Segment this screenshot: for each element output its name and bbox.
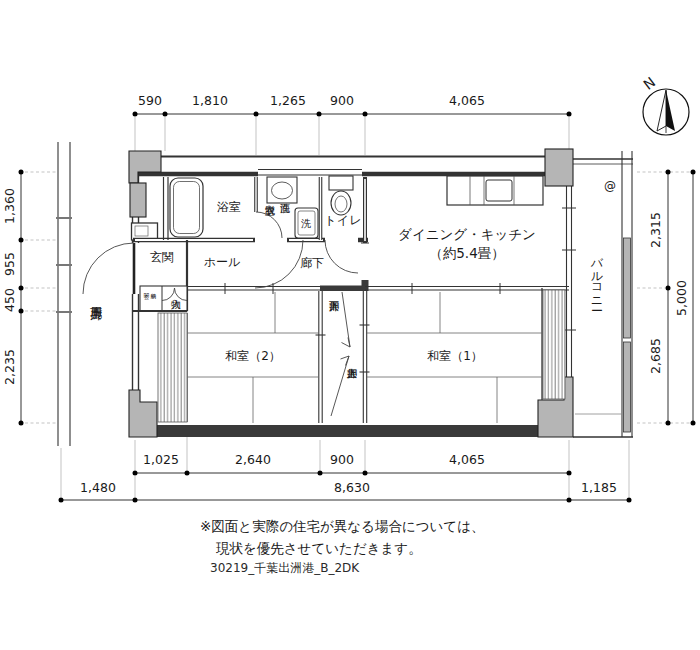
hall-label: ホール bbox=[204, 255, 241, 269]
japanese-room-1-label: 和室（1） bbox=[427, 349, 483, 363]
dim-top-2: 1,810 bbox=[192, 93, 228, 108]
north-compass-icon: N bbox=[640, 74, 689, 135]
bath-door-swing bbox=[256, 212, 282, 238]
entrance-label: 玄関 bbox=[150, 250, 174, 264]
dim-bottom-total-3: 1,185 bbox=[581, 480, 617, 495]
dim-top-3: 1,265 bbox=[270, 93, 306, 108]
dim-bottom-4: 4,065 bbox=[449, 452, 485, 467]
dim-left-3: 450 bbox=[2, 288, 17, 312]
dining-kitchen-label: ダイニング・キッチン bbox=[398, 226, 536, 242]
floor-plan-drawing: 590 1,810 1,265 900 4,065 1,360 955 450 … bbox=[0, 0, 700, 650]
closet-upper-label: 上部押入 bbox=[347, 368, 358, 379]
bathroom-label: 浴室 bbox=[217, 200, 241, 214]
dim-right-total: 5,000 bbox=[674, 280, 689, 316]
dim-bottom-total-1: 1,480 bbox=[80, 480, 116, 495]
toilet-tank bbox=[329, 176, 353, 190]
north-label: N bbox=[640, 74, 658, 93]
window-shutter-strips bbox=[158, 288, 565, 422]
dressing-door-swing bbox=[255, 240, 303, 288]
dim-bottom-2: 2,640 bbox=[235, 452, 271, 467]
dim-right-1: 2,315 bbox=[648, 212, 663, 248]
dim-left-1: 1,360 bbox=[2, 188, 17, 224]
dim-top-4: 900 bbox=[330, 93, 354, 108]
shared-corridor bbox=[56, 142, 72, 446]
dim-top-1: 590 bbox=[138, 93, 162, 108]
dim-bottom-total-2: 8,630 bbox=[334, 480, 370, 495]
shared-corridor-label: 共用廊下 bbox=[90, 307, 102, 321]
disclaimer-line-1: ※図面と実際の住宅が異なる場合については、 bbox=[200, 518, 484, 534]
balcony-label: バルコニー bbox=[590, 249, 604, 312]
closet-lower-label: 下部押入 bbox=[329, 301, 339, 313]
disclaimer-line-2: 現状を優先させていただきます。 bbox=[216, 540, 422, 556]
washbasin-label: 洗面 bbox=[280, 203, 290, 214]
dim-left-2: 955 bbox=[2, 252, 17, 276]
file-label: 30219_千葉出洲港_B_2DK bbox=[210, 561, 360, 575]
toilet-door-swing bbox=[325, 240, 358, 273]
kitchen-sink bbox=[486, 180, 512, 201]
dim-bottom-3: 900 bbox=[330, 452, 354, 467]
toilet-label: トイレ bbox=[325, 213, 362, 227]
closet-diagonals bbox=[331, 292, 350, 416]
notes: ※図面と実際の住宅が異なる場合については、 現状を優先させていただきます。 30… bbox=[200, 518, 484, 575]
dining-kitchen-size: （約5.4畳） bbox=[429, 245, 504, 261]
dim-top-5: 4,065 bbox=[449, 93, 485, 108]
corridor-label: 廊下 bbox=[300, 256, 324, 270]
balcony-drain-icon: @ bbox=[604, 179, 616, 193]
floor-plan-page: 590 1,810 1,265 900 4,065 1,360 955 450 … bbox=[0, 0, 700, 650]
dim-left-4: 2,235 bbox=[2, 349, 17, 385]
japanese-room-2-label: 和室（2） bbox=[225, 349, 281, 363]
entrance-door-swing bbox=[83, 243, 134, 294]
dim-bottom-1: 1,025 bbox=[143, 452, 179, 467]
washer-label: 洗 bbox=[301, 218, 311, 229]
dim-right-2: 2,685 bbox=[648, 338, 663, 374]
dressing-room-label: 脱衣室 bbox=[265, 205, 275, 216]
